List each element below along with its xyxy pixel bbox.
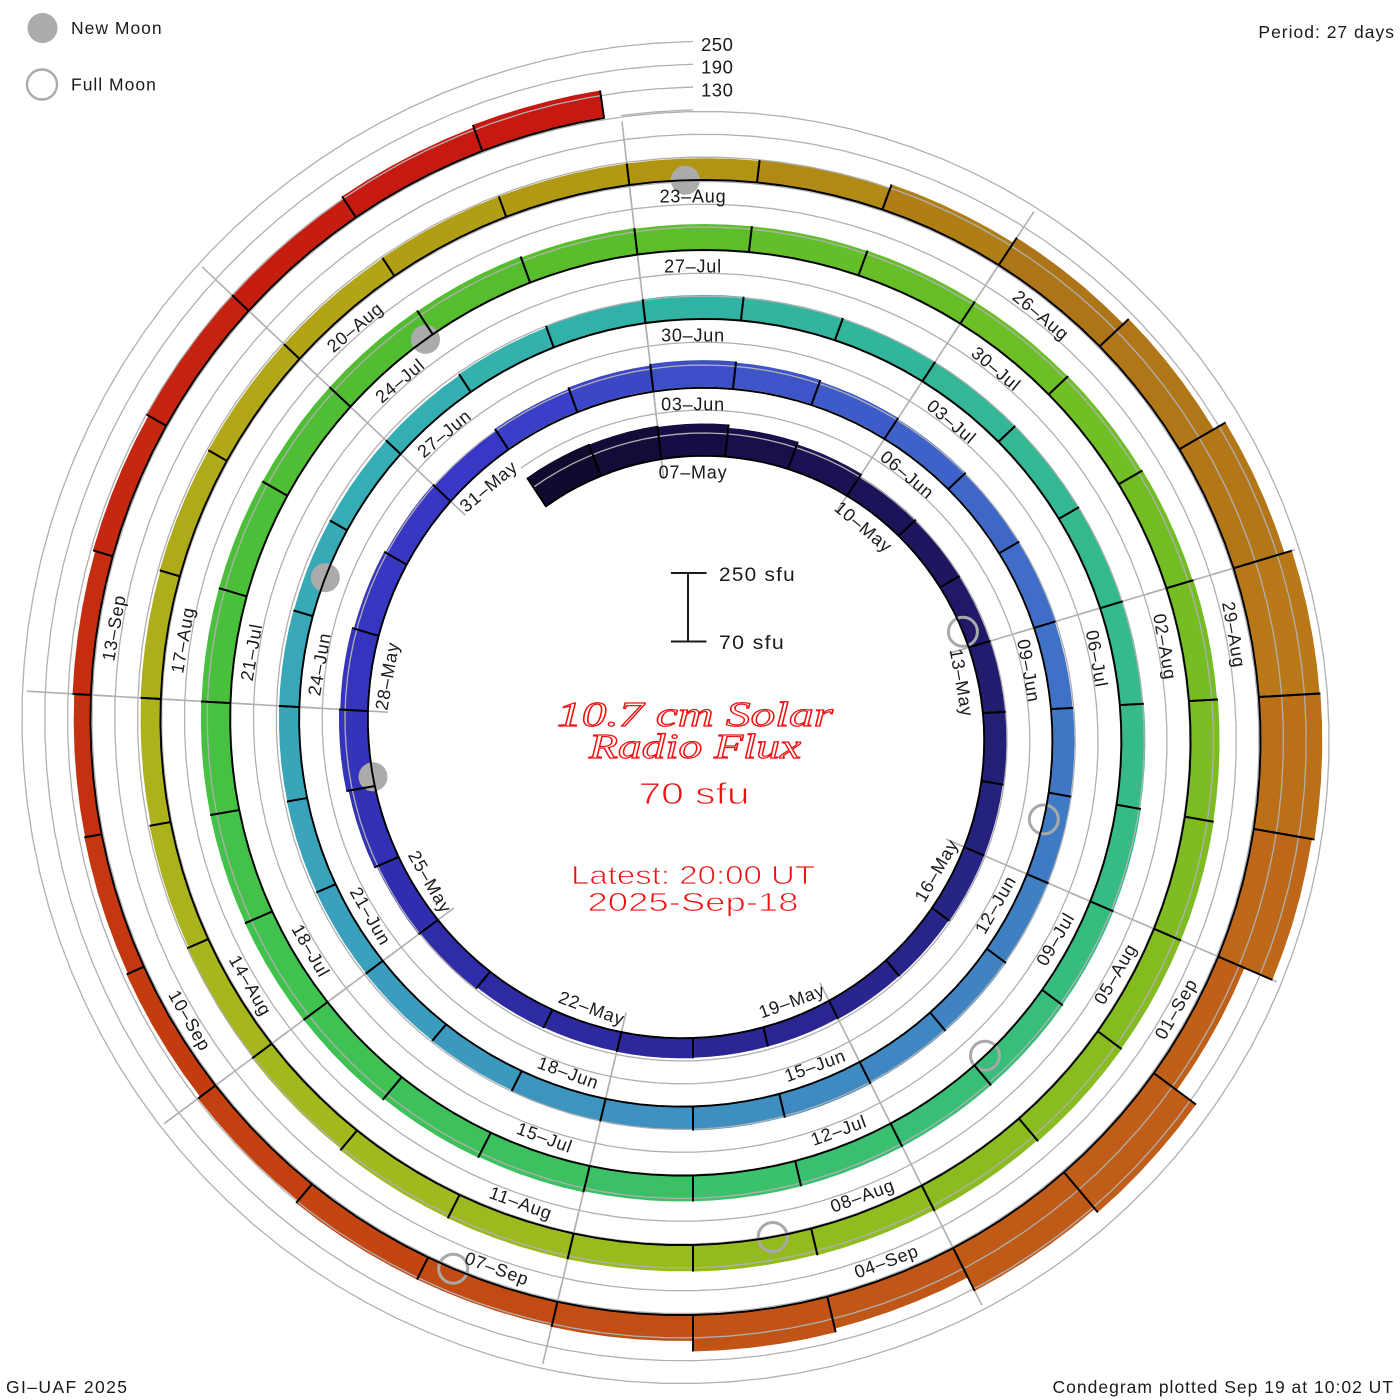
svg-text:Period: 27 days: Period: 27 days bbox=[1258, 22, 1395, 42]
svg-text:New Moon: New Moon bbox=[71, 18, 163, 38]
svg-text:70 sfu: 70 sfu bbox=[639, 776, 750, 811]
svg-text:190: 190 bbox=[701, 57, 733, 78]
svg-text:130: 130 bbox=[701, 80, 733, 101]
svg-text:Latest: 20:00 UT: Latest: 20:00 UT bbox=[571, 860, 815, 890]
svg-text:GI–UAF 2025: GI–UAF 2025 bbox=[6, 1377, 128, 1397]
svg-text:70 sfu: 70 sfu bbox=[719, 632, 785, 654]
svg-text:Full Moon: Full Moon bbox=[71, 75, 157, 95]
svg-text:30–Jun: 30–Jun bbox=[661, 326, 725, 346]
svg-text:2025-Sep-18: 2025-Sep-18 bbox=[588, 887, 799, 917]
svg-text:07–May: 07–May bbox=[659, 463, 728, 483]
svg-text:250 sfu: 250 sfu bbox=[719, 564, 796, 586]
svg-text:27–Jul: 27–Jul bbox=[664, 257, 722, 277]
svg-text:23–Aug: 23–Aug bbox=[660, 187, 727, 207]
svg-text:Radio Flux: Radio Flux bbox=[588, 727, 802, 766]
svg-text:03–Jun: 03–Jun bbox=[661, 395, 725, 415]
svg-text:Condegram plotted Sep 19 at 10: Condegram plotted Sep 19 at 10:02 UT bbox=[1053, 1377, 1394, 1397]
svg-text:250: 250 bbox=[701, 34, 733, 55]
